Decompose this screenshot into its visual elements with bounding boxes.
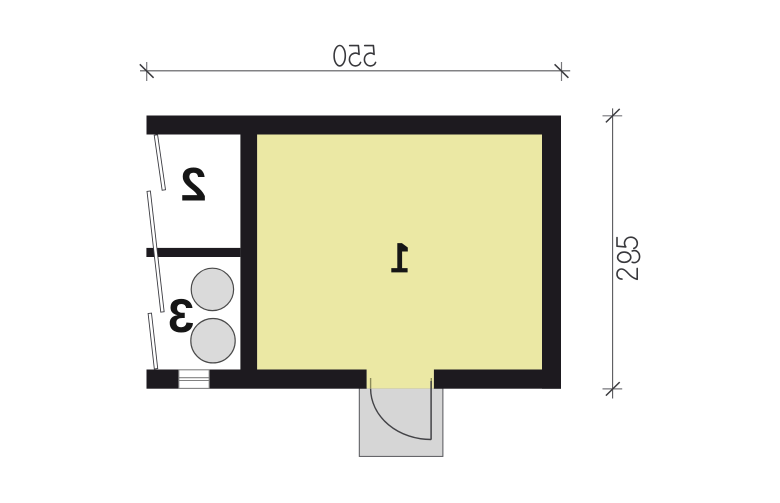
svg-text:2: 2: [180, 158, 206, 211]
svg-text:3: 3: [168, 289, 194, 342]
